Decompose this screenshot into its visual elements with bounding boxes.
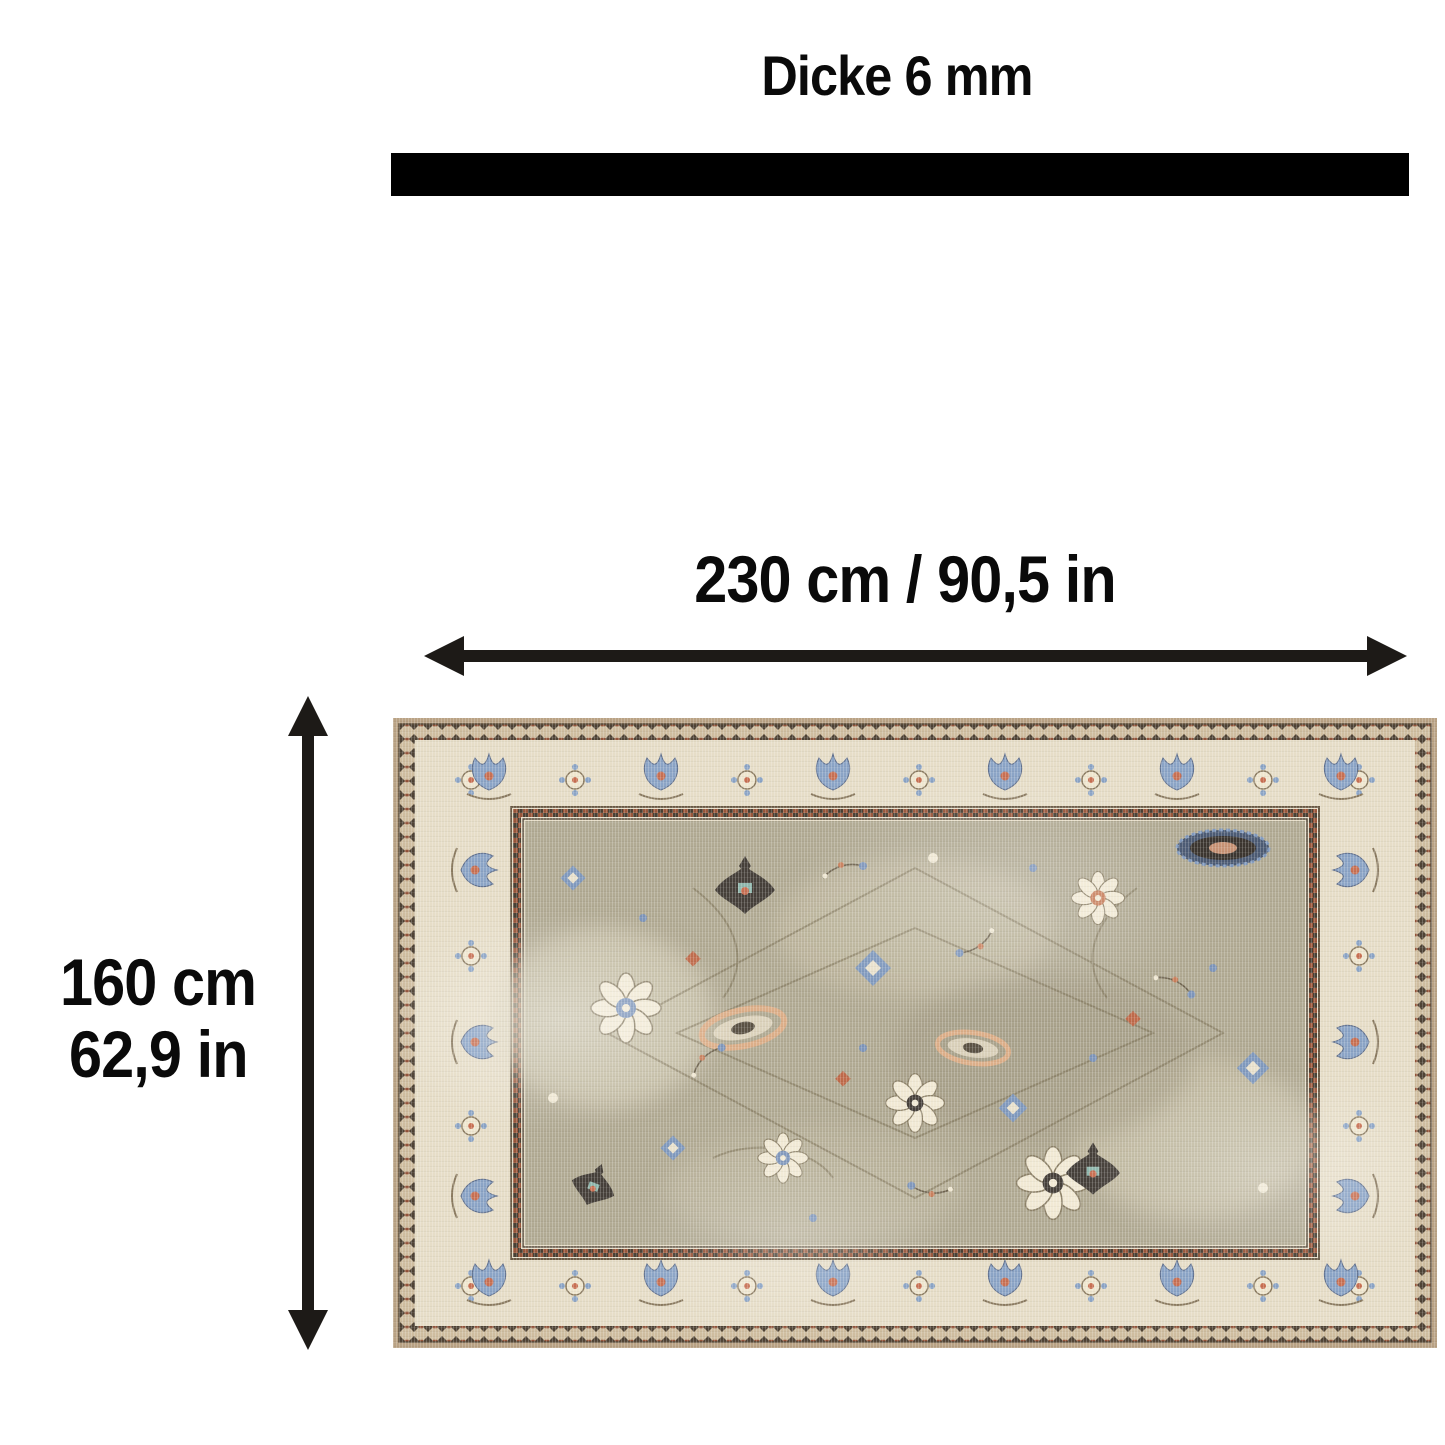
- height-dimension-arrow-icon: [286, 696, 330, 1350]
- thickness-label: Dicke 6 mm: [746, 46, 1047, 106]
- rug-photo: [393, 718, 1437, 1348]
- height-label-cm: 160 cm: [60, 946, 256, 1018]
- rug-illustration: [393, 718, 1437, 1348]
- thickness-label-text: Dicke 6 mm: [761, 46, 1032, 106]
- width-label: 230 cm / 90,5 in: [671, 544, 1139, 614]
- width-dimension-arrow-icon: [424, 634, 1407, 678]
- width-label-text: 230 cm / 90,5 in: [694, 544, 1115, 614]
- thickness-bar: [391, 153, 1409, 196]
- product-dimension-diagram: Dicke 6 mm 230 cm / 90,5 in 160 cm 62,9 …: [0, 0, 1445, 1445]
- height-label: 160 cm 62,9 in: [49, 946, 267, 1090]
- height-label-in: 62,9 in: [69, 1018, 248, 1090]
